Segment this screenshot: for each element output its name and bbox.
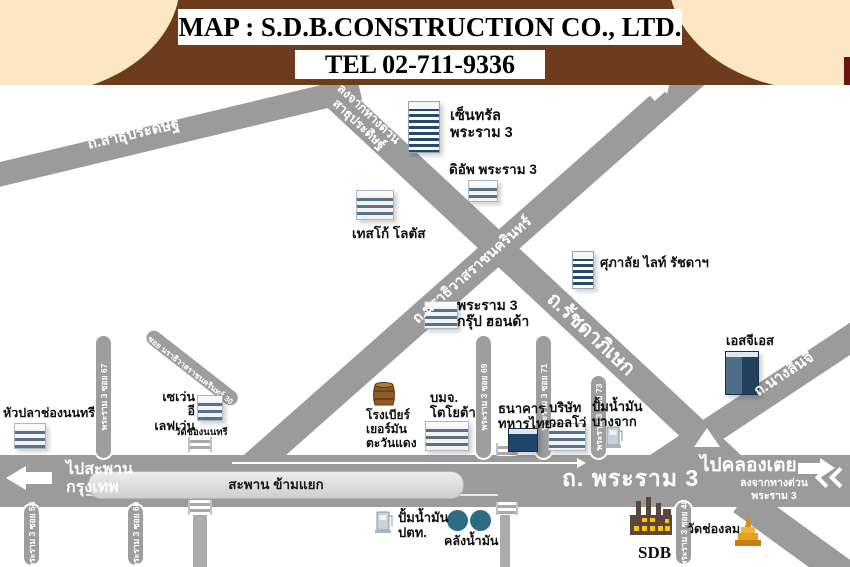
maroon-strip-decoration xyxy=(844,57,850,85)
tmb-bank-label: ธนาคาร ทหารไทย xyxy=(498,402,552,432)
gas-pump-icon xyxy=(374,508,394,534)
the-up-rama3-building-icon xyxy=(468,180,498,202)
soi-rama3-60: พระราม 3 ซอย 60 xyxy=(128,505,143,565)
road-sathupradit xyxy=(0,85,362,190)
soi-rama3-69: พระราม 3 ซอย 69 xyxy=(476,336,491,458)
oil-depot-label: คลังน้ำมัน xyxy=(444,534,498,548)
arrow-left-icon xyxy=(6,466,52,490)
map-page: MAP : S.D.B.CONSTRUCTION CO., LTD. TEL 0… xyxy=(0,0,850,567)
map-title: MAP : S.D.B.CONSTRUCTION CO., LTD. xyxy=(178,9,682,45)
crossing-stem xyxy=(193,515,207,567)
road-label-ratchadaphisek: ถ.รัชดาภิเษก xyxy=(542,288,639,380)
sdb-label: SDB xyxy=(638,543,671,563)
ptt-label: ปั้มน้ำมัน ปตท. xyxy=(398,511,448,541)
tesco-lotus-building-icon xyxy=(356,190,394,220)
volvo-label: บริษัท วอลโว่ xyxy=(549,401,586,431)
central-rama3-label: เซ็นทรัล พระราม 3 xyxy=(450,108,513,141)
road-label-to-khlong-toei: ไปคลองเตย xyxy=(700,455,797,476)
road-label-rama3: ถ. พระราม 3 xyxy=(562,466,699,492)
the-up-rama3-label: ดิอัพ พระราม 3 xyxy=(449,162,537,178)
bangchak-label: ปั้มน้ำมัน บางจาก xyxy=(592,400,642,430)
toyota-building-icon xyxy=(425,421,469,451)
soi-rama3-67: พระราม 3 ซอย 67 xyxy=(96,336,111,458)
lane-line-east xyxy=(232,462,577,464)
seven-eleven-building-icon xyxy=(197,395,223,421)
seven-eleven-label: เซเว่น อีเลฟเว่น xyxy=(148,390,195,433)
brewery-label: โรงเบียร์ เยอร์มัน ตะวันแดง xyxy=(366,409,417,450)
road-label-to-krungthep-bridge: ไปสะพาน กรุงเทพ xyxy=(66,461,133,497)
sdb-factory-icon xyxy=(628,495,674,539)
pedestrian-bridge-icon xyxy=(496,502,518,515)
road-fork-gore xyxy=(694,428,720,447)
pedestrian-bridge-icon xyxy=(188,500,212,515)
header-banner: MAP : S.D.B.CONSTRUCTION CO., LTD. TEL 0… xyxy=(0,0,850,85)
curtain-left-decoration xyxy=(0,0,180,85)
oil-tank-icon xyxy=(447,510,468,531)
curtain-right-decoration xyxy=(668,0,850,85)
telephone-number: TEL 02-711-9336 xyxy=(295,50,545,79)
flyover-bridge: สะพาน ข้ามแยก xyxy=(88,471,464,499)
hua-pla-label: หัวปลาช่องนนทรี xyxy=(3,406,95,420)
central-rama3-tower-icon xyxy=(408,101,440,153)
road-label-exit-sathupradit: ลงจากทางด่วน สาธุประดิษฐ์ xyxy=(321,85,407,161)
supalai-lite-label: ศุภาลัย ไลท์ รัชดาฯ xyxy=(600,256,709,271)
road-label-exit-rama3: ลงจากทางด่วน พระราม 3 xyxy=(730,477,818,503)
supalai-tower-icon xyxy=(572,251,594,289)
flyover-label: สะพาน ข้ามแยก xyxy=(228,477,323,492)
crossing-stem xyxy=(500,515,510,567)
soi-rama3-58: พระราม 3 ซอย 58 xyxy=(24,505,39,565)
map-canvas: พระราม 3 ซอย 67 พระราม 3 ซอย 69 พระราม 3… xyxy=(0,85,850,567)
oil-tank-icon xyxy=(470,510,491,531)
wat-chong-lom-label: วัดช่องลม xyxy=(687,522,740,536)
pedestrian-bridge-icon xyxy=(188,437,212,452)
beer-barrel-icon xyxy=(370,381,398,409)
hua-pla-building-icon xyxy=(14,423,46,449)
sgs-label: เอสจีเอส xyxy=(726,334,774,349)
tesco-lotus-label: เทสโก้ โลตัส xyxy=(352,226,425,242)
toyota-label: บมจ. โตโยต้า xyxy=(430,391,476,421)
honda-label: พระราม 3 กรุ๊ป ฮอนด้า xyxy=(457,297,529,329)
